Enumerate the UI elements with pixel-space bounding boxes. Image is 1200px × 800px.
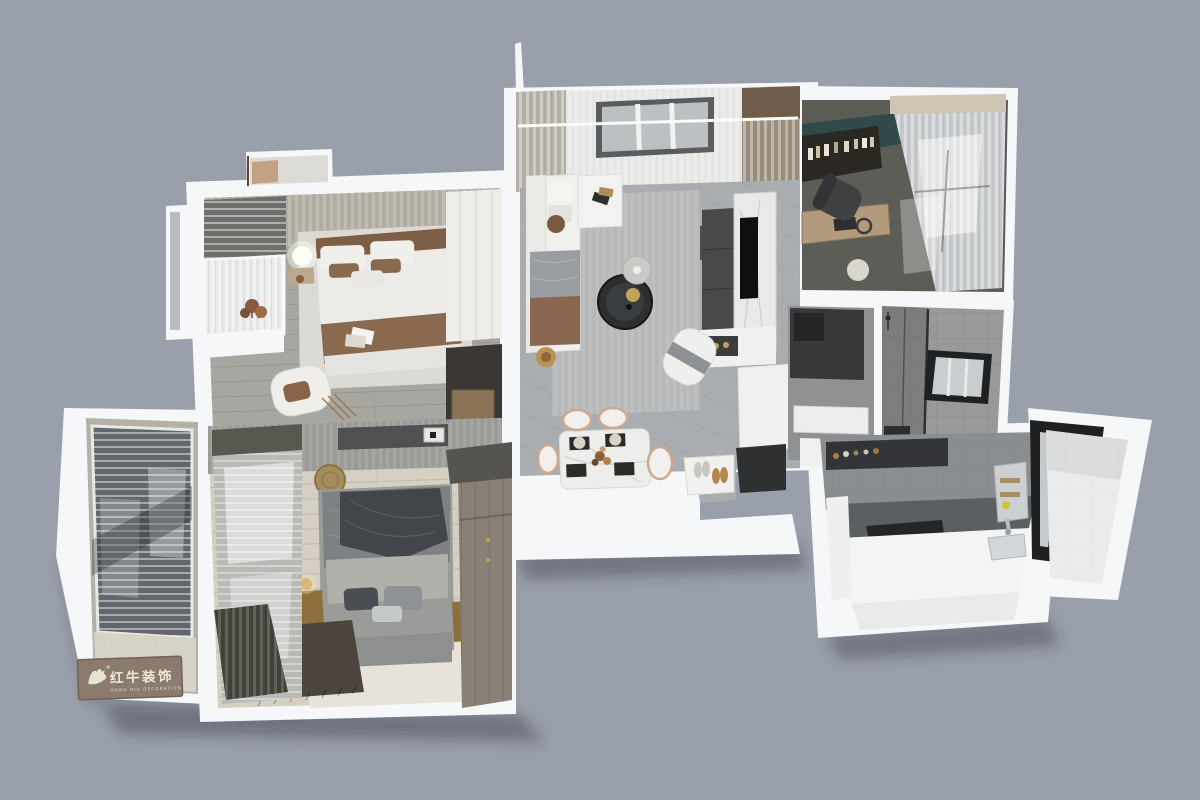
dining-chair — [563, 410, 591, 430]
study — [802, 94, 1008, 292]
mirror — [884, 426, 910, 435]
placemat — [614, 462, 634, 476]
pillow — [372, 606, 402, 622]
drawer-cabinet — [452, 390, 494, 420]
condiment — [1002, 501, 1010, 509]
hall-cabinet — [738, 364, 792, 452]
curtain-rail — [890, 94, 1006, 114]
pillow — [547, 181, 574, 203]
dining-chair — [648, 447, 672, 479]
side-window-sliver — [170, 212, 180, 330]
dining-chair — [599, 408, 627, 428]
dining-chair — [538, 445, 558, 473]
floorplan-svg: ® 红牛装饰 HONG NIU DECORATION — [0, 0, 1200, 800]
counter — [794, 406, 868, 434]
logo-plaque: ® 红牛装饰 HONG NIU DECORATION — [77, 656, 182, 700]
floor-lamp — [847, 259, 869, 281]
slippers — [694, 462, 702, 478]
gray-throw — [530, 250, 580, 300]
left-balcony: ® 红牛装饰 HONG NIU DECORATION — [77, 418, 198, 700]
slippers — [712, 468, 720, 484]
tv — [740, 217, 758, 299]
pillow — [547, 215, 565, 233]
sink — [988, 534, 1026, 560]
floorplan-render: ® 红牛装饰 HONG NIU DECORATION — [0, 0, 1200, 800]
pillow — [351, 270, 384, 287]
tv-console — [702, 208, 734, 332]
bed — [316, 228, 463, 377]
placemat — [566, 464, 586, 478]
entry-door-mat — [736, 444, 786, 493]
living-room — [516, 86, 800, 493]
slippers — [720, 467, 728, 483]
window-seat — [248, 155, 328, 186]
master-bedroom — [208, 418, 512, 708]
brown-cushion — [530, 296, 580, 346]
wardrobe — [446, 189, 502, 342]
logo-text-cn: 红牛装饰 — [110, 667, 175, 686]
dining-table — [559, 428, 651, 489]
gold-tray — [626, 288, 640, 302]
slippers — [702, 461, 710, 477]
cushion — [252, 160, 278, 184]
bedside-lamp — [292, 246, 312, 266]
